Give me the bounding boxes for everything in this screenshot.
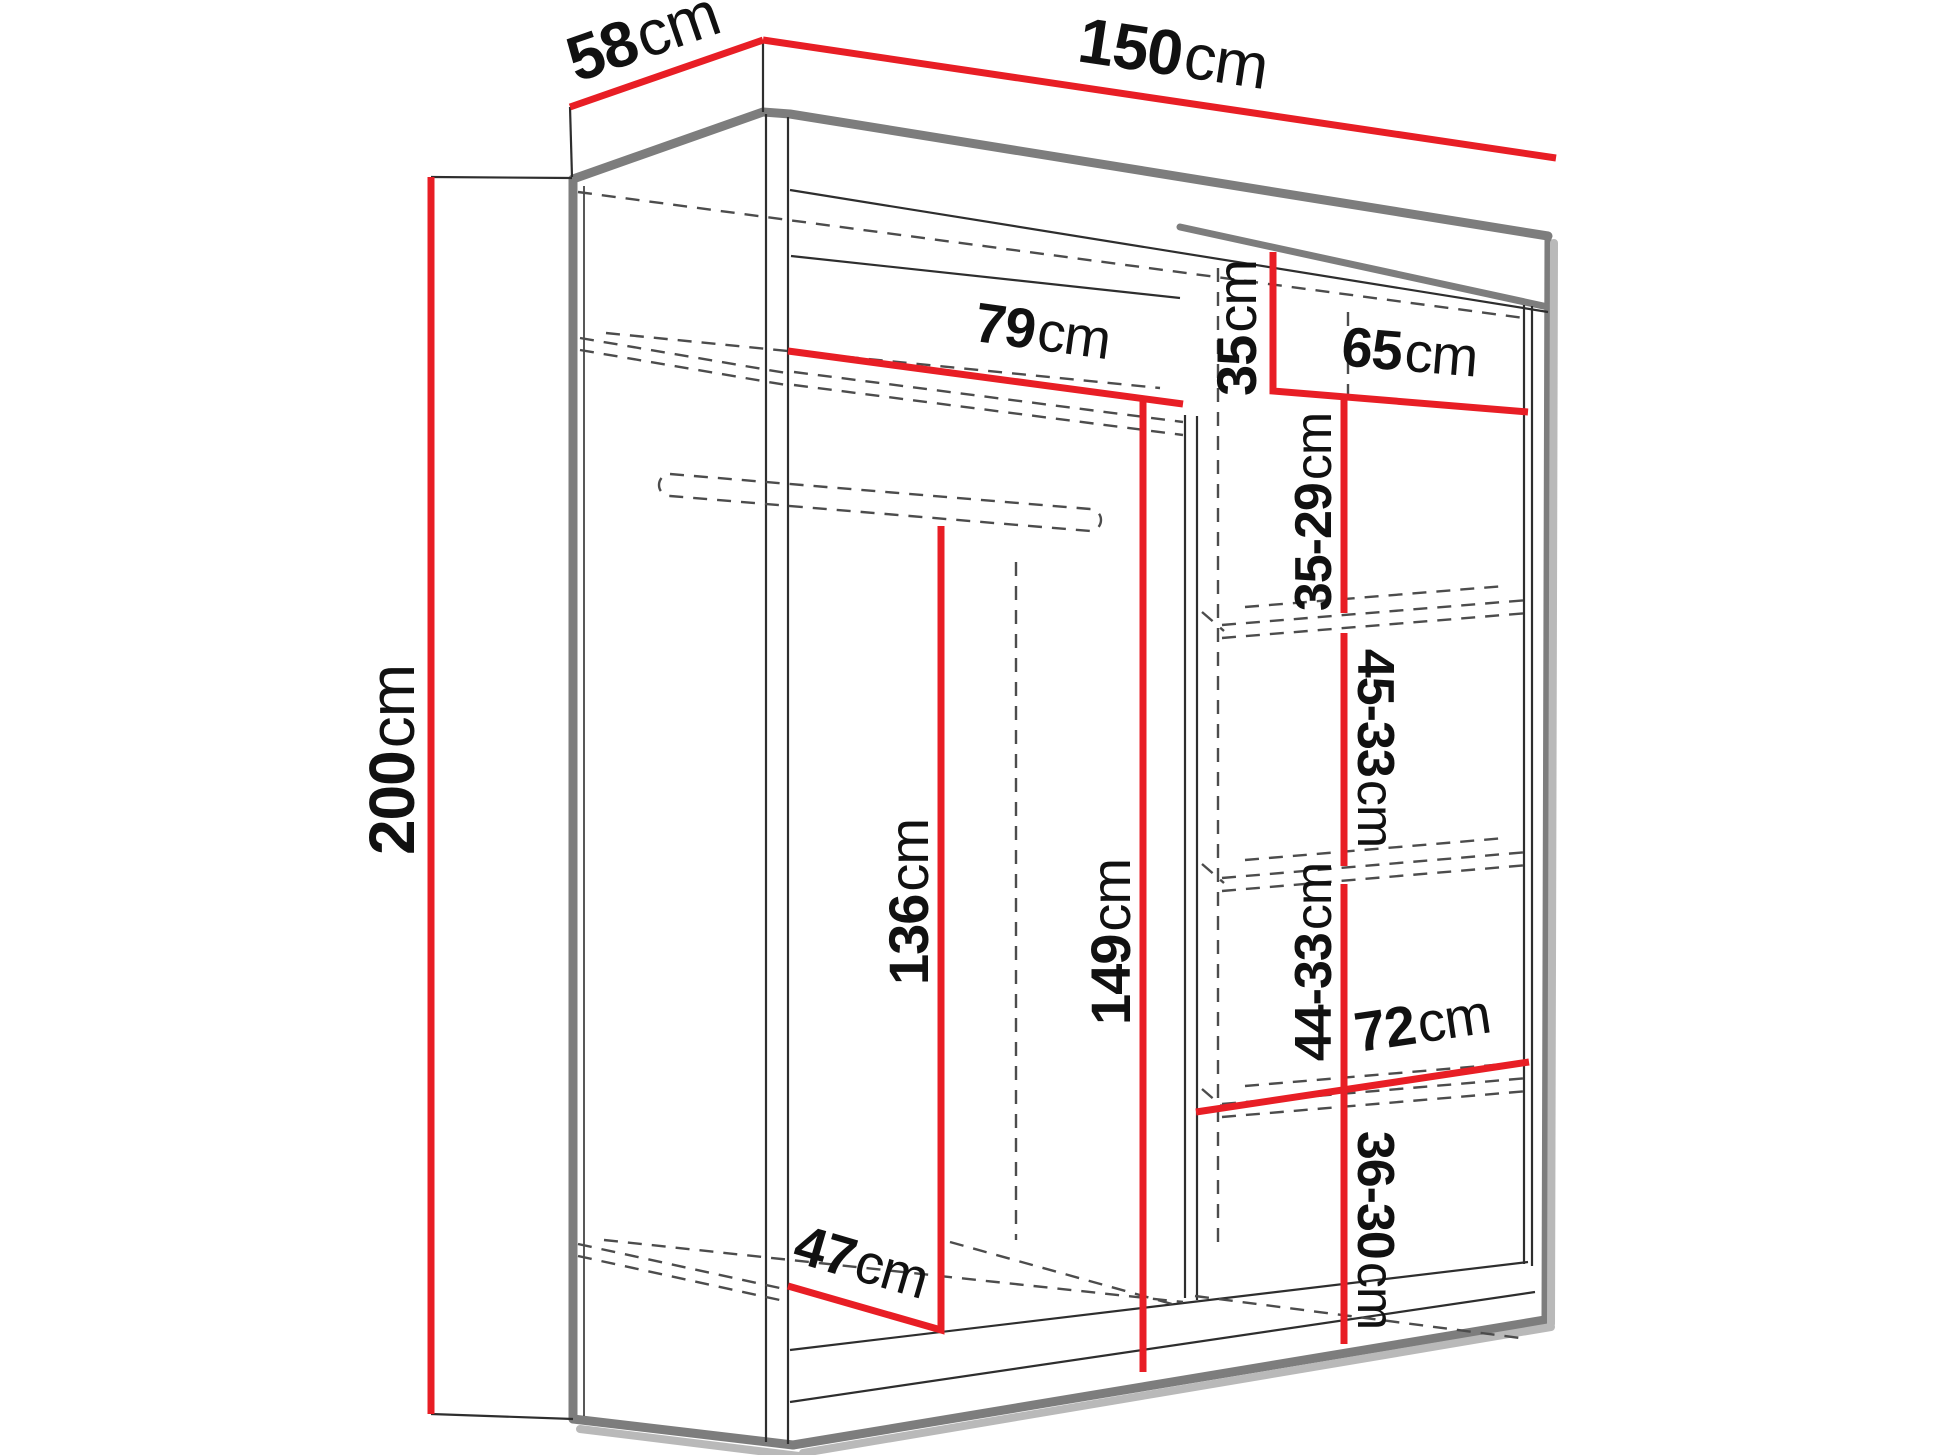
dim-label-left-section-height: 149cm [1079, 859, 1142, 1025]
hanging-rail [659, 474, 1101, 531]
ext-line-height-bottom [431, 1414, 573, 1419]
shelf1-front-a [1222, 600, 1528, 625]
dim-label-hanging-height: 136cm [877, 819, 940, 985]
shelf1-back [1245, 586, 1505, 607]
carcass-front-bottom-edge [793, 1320, 1545, 1445]
ext-line-height-top [431, 177, 572, 178]
floor-depth-b [578, 1256, 789, 1302]
carcass-top-edge [573, 112, 1548, 236]
floor-depth-a [578, 1244, 789, 1290]
shelf2-depth-tick [1202, 864, 1224, 883]
dim-label-overall-height: 200cm [356, 665, 428, 855]
hanging-rail-outline [659, 474, 1101, 531]
shelf2-front-a [1222, 852, 1528, 878]
dim-label-shelf-gap-1: 35-29cm [1285, 413, 1343, 611]
dim-label-left-section-width: 79cm [971, 290, 1114, 371]
dim-label-bottom-shelf-width: 72cm [1350, 982, 1494, 1064]
dim-label-right-section-width: 65cm [1339, 315, 1480, 389]
left-top-shelf-front-b [794, 385, 1183, 435]
shelf1-depth-tick [1202, 612, 1224, 631]
shadow-right-edge [1551, 243, 1554, 1324]
ext-line-depth-left [570, 107, 572, 177]
dim-label-shelf-gap-3: 44-33cm [1285, 863, 1343, 1061]
floor-depth-c [950, 1242, 1172, 1304]
diagram-canvas: 58cm 150cm 200cm 79cm 35cm 65cm 35-29cm … [0, 0, 1940, 1455]
shelf2-front-b [1222, 865, 1528, 891]
shelf1-front-b [1222, 613, 1528, 638]
wardrobe-dimension-diagram: 58cm 150cm 200cm 79cm 35cm 65cm 35-29cm … [0, 0, 1940, 1455]
dim-label-shelf-gap-2: 45-33cm [1346, 649, 1404, 847]
dim-label-top-shelf-height: 35cm [1205, 260, 1268, 396]
header-bottom-edge [790, 190, 1548, 312]
dim-label-shelf-gap-4: 36-30cm [1346, 1131, 1404, 1329]
